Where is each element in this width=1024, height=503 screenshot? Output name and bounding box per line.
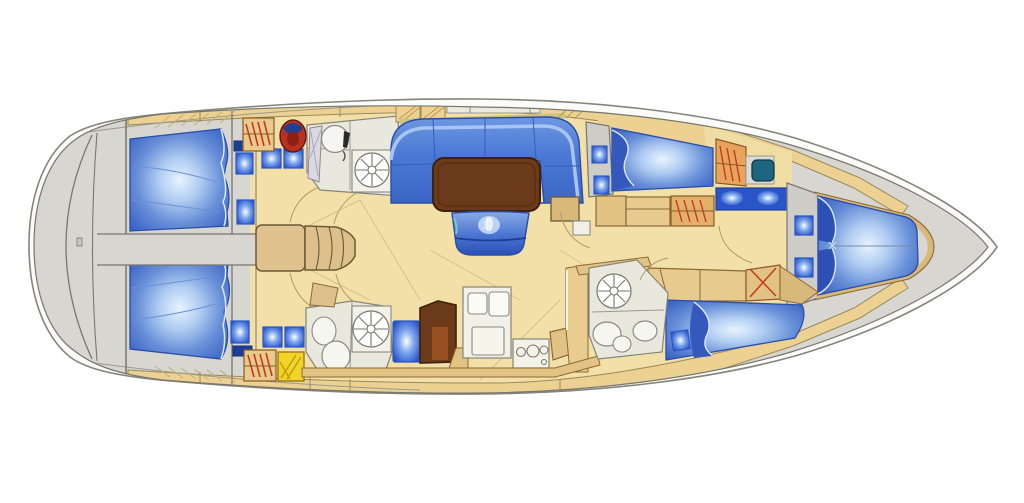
svg-text:25: 25 [482, 221, 494, 232]
